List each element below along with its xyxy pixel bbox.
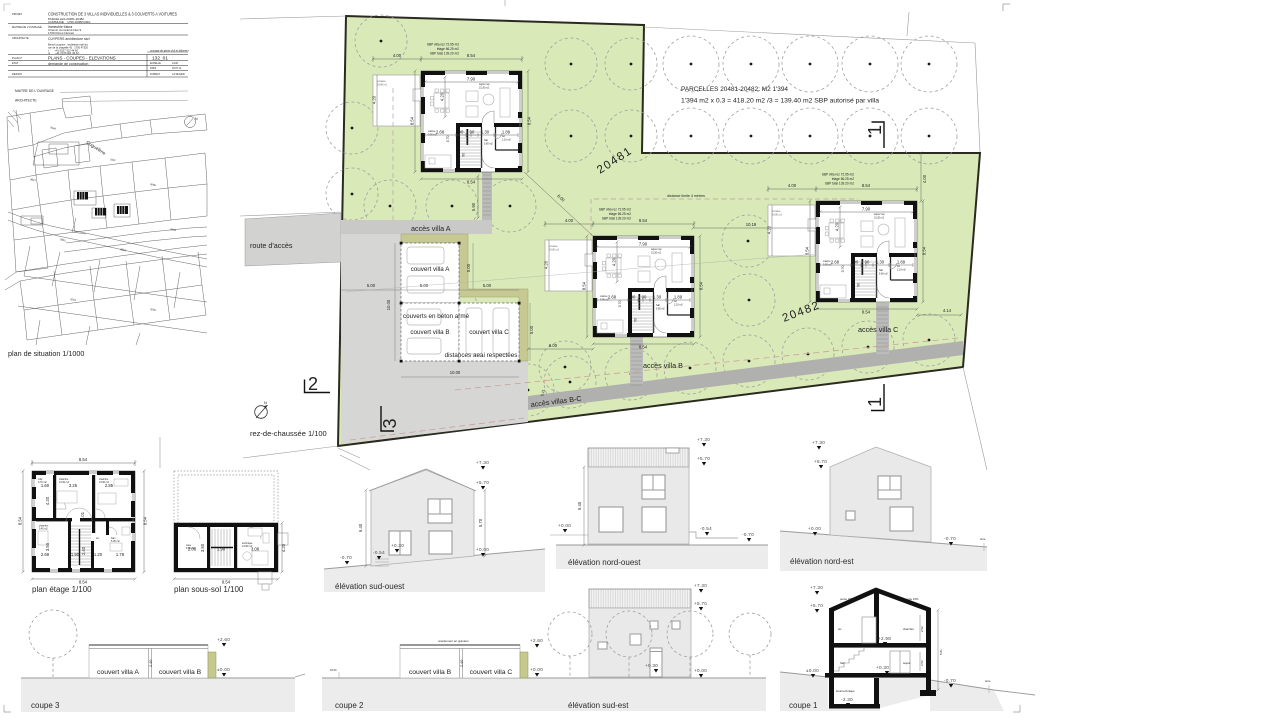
svg-text:8.54: 8.54 (222, 580, 231, 585)
svg-text:±0.00: ±0.00 (217, 667, 230, 672)
svg-text:9.45 m2: 9.45 m2 (39, 528, 48, 531)
svg-text:A1 594x840: A1 594x840 (172, 73, 185, 76)
svg-text:3: 3 (380, 418, 400, 428)
svg-text:+5.70: +5.70 (694, 601, 707, 606)
svg-text:10.00: 10.00 (386, 299, 391, 310)
svg-text:2: 2 (308, 374, 318, 394)
svg-text:10.00: 10.00 (450, 370, 461, 375)
svg-text:distance limite 4 mètres: distance limite 4 mètres (667, 194, 705, 198)
svg-text:coupe 2: coupe 2 (335, 701, 364, 710)
svg-text:N: N (264, 400, 267, 405)
svg-text:±0.00: ±0.00 (806, 668, 819, 673)
svg-text:1.90: 1.90 (217, 547, 226, 552)
svg-text:couvert villa C: couvert villa C (470, 669, 513, 676)
svg-text:coupe 3: coupe 3 (31, 701, 60, 710)
svg-text:demande de construction: demande de construction (48, 62, 88, 66)
svg-text:couverts en béton armé: couverts en béton armé (403, 313, 470, 320)
svg-text:ETAT: ETAT (12, 61, 19, 65)
svg-text:2.52: 2.52 (920, 626, 924, 632)
svg-text:plan sous-sol 1/100: plan sous-sol 1/100 (174, 585, 244, 594)
svg-text:MAITRE DE L'OUVRAGE: MAITRE DE L'OUVRAGE (15, 89, 55, 93)
svg-text:ECHELLE: ECHELLE (150, 62, 161, 65)
svg-text:terre: terre (985, 679, 991, 683)
svg-text:DESSIN: DESSIN (12, 72, 22, 76)
svg-text:séjour: séjour (903, 661, 911, 665)
svg-text:+0.00: +0.00 (694, 668, 707, 673)
svg-text:accès villa C: accès villa C (858, 325, 898, 334)
svg-text:CONSTRUCTION DE 3 VILLAS INDIV: CONSTRUCTION DE 3 VILLAS INDIVIDUELLES &… (48, 12, 177, 17)
svg-text:1.01: 1.01 (80, 511, 85, 520)
svg-text:+7.30: +7.30 (694, 583, 707, 588)
svg-text:accès villa A: accès villa A (411, 224, 451, 233)
svg-text:5.00: 5.00 (466, 263, 471, 272)
svg-text:-0.54: -0.54 (700, 526, 712, 531)
svg-text:+0.30: +0.30 (876, 665, 889, 670)
svg-text:5.00: 5.00 (367, 283, 376, 288)
svg-text:pente 15%: pente 15% (840, 597, 854, 601)
svg-text:1.90: 1.90 (71, 552, 80, 557)
svg-text:2.52: 2.52 (920, 660, 924, 666)
svg-text:rez-de-chaussée 1/100: rez-de-chaussée 1/100 (250, 429, 327, 438)
svg-text:COMMUNE 1700 FRIBOURG: COMMUNE 1700 FRIBOURG (48, 20, 91, 24)
svg-text:8.54: 8.54 (143, 516, 148, 525)
svg-text:couvert villa B: couvert villa B (409, 669, 452, 676)
svg-text:+0.00: +0.00 (476, 547, 489, 552)
svg-text:couvert villa A: couvert villa A (411, 266, 451, 273)
svg-text:CUYPERS architecture sàrl: CUYPERS architecture sàrl (48, 37, 90, 41)
svg-text:wc: wc (838, 627, 842, 631)
svg-text:8.54: 8.54 (79, 580, 88, 585)
svg-text:3.25: 3.25 (69, 483, 78, 488)
svg-text:couvert villa A: couvert villa A (97, 669, 139, 676)
svg-text:-0.70: -0.70 (340, 555, 352, 560)
svg-text:2.85: 2.85 (105, 483, 114, 488)
svg-text:PROJET: PROJET (12, 12, 23, 16)
svg-text:DATE: DATE (150, 67, 157, 70)
svg-text:6.00: 6.00 (549, 343, 558, 348)
svg-text:ARCHITECTE: ARCHITECTE (15, 99, 37, 103)
svg-text:chambre: chambre (903, 627, 914, 631)
svg-text:132_01: 132_01 (152, 56, 168, 62)
svg-text:-0.70: -0.70 (742, 532, 754, 537)
svg-text:+2.98: +2.98 (878, 636, 891, 641)
svg-text:2.68: 2.68 (41, 552, 50, 557)
svg-text:1: 1 (865, 125, 885, 135)
svg-text:5.70: 5.70 (478, 518, 483, 527)
svg-text:local technique: local technique (836, 689, 855, 693)
svg-text:coupe 1: coupe 1 (789, 701, 818, 710)
svg-text:2.40: 2.40 (149, 660, 153, 667)
svg-text:10.19: 10.19 (746, 222, 757, 227)
svg-text:route d'accès: route d'accès (250, 241, 293, 250)
svg-text:1/100: 1/100 (172, 62, 179, 65)
svg-text:8.54: 8.54 (79, 457, 88, 462)
svg-text:distances aeai respectées: distances aeai respectées (445, 352, 518, 359)
svg-text:4.20: 4.20 (281, 543, 286, 552)
svg-text:+5.70: +5.70 (814, 459, 827, 464)
svg-text:PLANS - COUPES - ELEVATIONS: PLANS - COUPES - ELEVATIONS (48, 55, 116, 60)
svg-text:hall: hall (840, 661, 845, 665)
svg-text:1700 Pérez-Noréaz: 1700 Pérez-Noréaz (48, 31, 75, 35)
svg-text:2.68: 2.68 (188, 547, 197, 552)
svg-text:3.08: 3.08 (251, 547, 260, 552)
svg-text:2.40: 2.40 (81, 546, 86, 555)
svg-text:FORMAT: FORMAT (150, 73, 160, 76)
svg-text:+5.70: +5.70 (810, 603, 823, 608)
svg-text:+5.70: +5.70 (697, 456, 710, 461)
svg-text:PARCELLES 20481-20482: M2 1'39: PARCELLES 20481-20482: M2 1'394 (681, 86, 788, 93)
svg-text:+2.60: +2.60 (217, 637, 230, 642)
svg-text:+5.70: +5.70 (476, 480, 489, 485)
svg-text:5.00: 5.00 (483, 283, 492, 288)
svg-text:3.50: 3.50 (45, 542, 50, 551)
svg-text:revêtement en graviers: revêtement en graviers (438, 639, 469, 643)
svg-text:ouvrage de génie civil et bâti: ouvrage de génie civil et bâtiment (150, 49, 189, 53)
svg-text:+0.00: +0.00 (808, 526, 821, 531)
svg-text:-2.30: -2.30 (841, 697, 853, 702)
svg-text:4.14: 4.14 (943, 308, 952, 313)
svg-text:+7.30: +7.30 (476, 460, 489, 465)
svg-text:1: 1 (865, 397, 885, 407)
svg-text:+0.00: +0.00 (558, 523, 571, 528)
svg-text:plan de situation 1/1000: plan de situation 1/1000 (8, 349, 84, 358)
svg-text:3.50: 3.50 (200, 543, 205, 552)
svg-text:6.40: 6.40 (577, 501, 582, 510)
svg-text:+0.00: +0.00 (530, 667, 543, 672)
svg-text:+7.30: +7.30 (697, 437, 710, 442)
svg-text:+0.30: +0.30 (391, 543, 404, 548)
svg-text:1.78: 1.78 (116, 552, 125, 557)
svg-text:couvert villa B: couvert villa B (159, 669, 202, 676)
svg-text:6.40: 6.40 (358, 523, 363, 532)
svg-text:pente 15%: pente 15% (905, 597, 919, 601)
svg-text:+7.30: +7.30 (812, 440, 825, 445)
svg-text:immeuble futura: immeuble futura (48, 25, 72, 29)
svg-text:élévation nord-est: élévation nord-est (790, 557, 854, 566)
svg-text:4.00: 4.00 (922, 174, 927, 183)
svg-text:élévation sud-est: élévation sud-est (568, 701, 629, 710)
svg-text:ARCHITECTE: ARCHITECTE (12, 36, 29, 40)
svg-text:5.90: 5.90 (471, 202, 476, 211)
svg-text:-0.70: -0.70 (944, 678, 956, 683)
svg-text:03.07.14: 03.07.14 (172, 67, 182, 70)
svg-text:couvert villa B: couvert villa B (410, 329, 449, 336)
svg-text:+0.30: +0.30 (645, 663, 658, 668)
svg-text:1.20: 1.20 (94, 552, 103, 557)
svg-text:couvert villa C: couvert villa C (469, 329, 509, 336)
svg-text:plan étage 1/100: plan étage 1/100 (32, 585, 92, 594)
svg-text:1.60: 1.60 (41, 483, 50, 488)
svg-text:5.05 m2: 5.05 m2 (111, 540, 120, 543)
svg-text:5.00: 5.00 (529, 325, 534, 334)
svg-text:4.20: 4.20 (45, 496, 50, 505)
svg-text:2.40: 2.40 (460, 660, 464, 667)
svg-text:PLAN N°: PLAN N° (12, 56, 22, 60)
svg-text:8.54: 8.54 (18, 516, 23, 525)
svg-text:accès villa B: accès villa B (643, 361, 683, 370)
svg-text:-0.54: -0.54 (373, 550, 385, 555)
svg-text:-0.70: -0.70 (944, 536, 956, 541)
svg-text:5.81: 5.81 (939, 649, 943, 655)
svg-text:MAITRE DE L'OUVRAGE: MAITRE DE L'OUVRAGE (12, 25, 42, 29)
svg-text:élévation nord-ouest: élévation nord-ouest (568, 558, 641, 567)
svg-text:+2.60: +2.60 (530, 638, 543, 643)
svg-text:±0.00: ±0.00 (330, 668, 337, 672)
svg-text:1'394 m2 x 0.3 = 418.20 m2 /3: 1'394 m2 x 0.3 = 418.20 m2 /3 = 139.40 m… (681, 98, 879, 105)
svg-text:élévation sud-ouest: élévation sud-ouest (335, 582, 405, 591)
svg-text:terre: terre (980, 537, 986, 541)
svg-text:+7.30: +7.30 (810, 585, 823, 590)
